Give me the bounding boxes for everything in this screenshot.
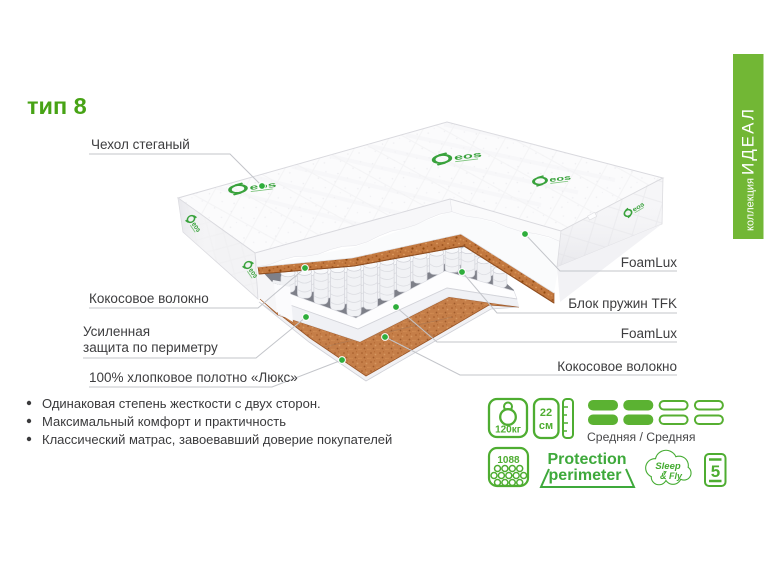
svg-text:100% хлопковое полотно «Люкс»: 100% хлопковое полотно «Люкс» [89,370,298,385]
svg-text:22: 22 [540,407,552,419]
svg-text:Одинаковая степень жесткости с: Одинаковая степень жесткости с двух стор… [42,396,321,411]
svg-text:& Fly: & Fly [660,471,683,481]
svg-text:Protection: Protection [547,451,626,468]
svg-text:120кг: 120кг [495,425,521,436]
svg-text:Кокосовое волокно: Кокосовое волокно [89,291,209,306]
svg-text:Блок пружин TFK: Блок пружин TFK [568,296,677,311]
svg-text:защита по периметру: защита по периметру [83,340,218,355]
svg-text:Средняя / Средняя: Средняя / Средняя [587,430,695,444]
svg-text:Кокосовое волокно: Кокосовое волокно [557,359,677,374]
svg-text:1088: 1088 [497,455,520,466]
svg-text:FoamLux: FoamLux [621,326,678,341]
svg-text:Чехол стеганый: Чехол стеганый [91,137,190,152]
svg-text:Усиленная: Усиленная [83,324,150,339]
svg-text:5: 5 [711,462,720,481]
svg-text:Классический матрас, завоевавш: Классический матрас, завоевавший доверие… [42,432,392,447]
svg-text:perimeter: perimeter [549,467,622,484]
svg-text:FoamLux: FoamLux [621,255,678,270]
svg-text:см: см [539,420,553,432]
svg-text:Максимальный комфорт и практич: Максимальный комфорт и практичность [42,414,286,429]
svg-text:тип 8: тип 8 [27,93,87,119]
